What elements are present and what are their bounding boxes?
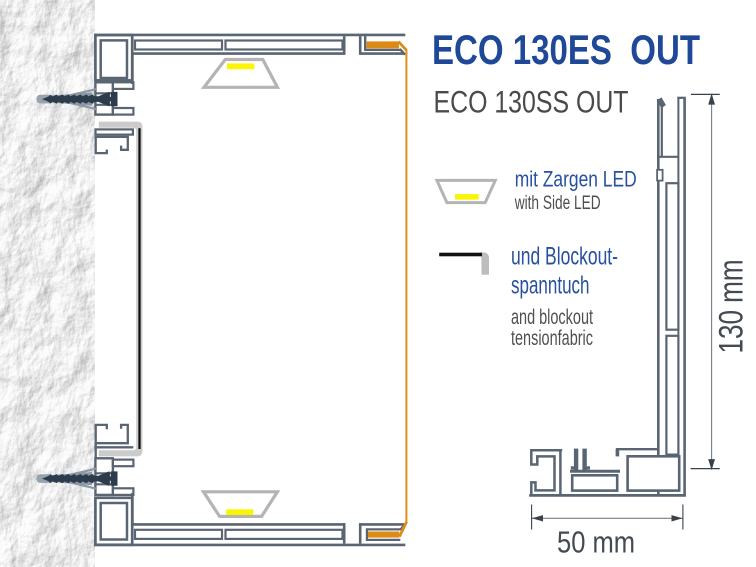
svg-text:ECO 130ES OUT: ECO 130ES OUT [432, 26, 700, 73]
svg-text:tensionfabric: tensionfabric [511, 327, 593, 350]
svg-text:50 mm: 50 mm [557, 525, 635, 559]
svg-text:with Side LED: with Side LED [514, 192, 601, 214]
svg-text:und Blockout-: und Blockout- [511, 243, 618, 271]
svg-text:ECO 130SS OUT: ECO 130SS OUT [434, 84, 629, 120]
svg-text:mit Zargen LED: mit Zargen LED [515, 167, 637, 192]
svg-text:and blockout: and blockout [511, 306, 593, 329]
svg-text:130 mm: 130 mm [713, 260, 751, 354]
svg-text:spanntuch: spanntuch [511, 271, 590, 299]
